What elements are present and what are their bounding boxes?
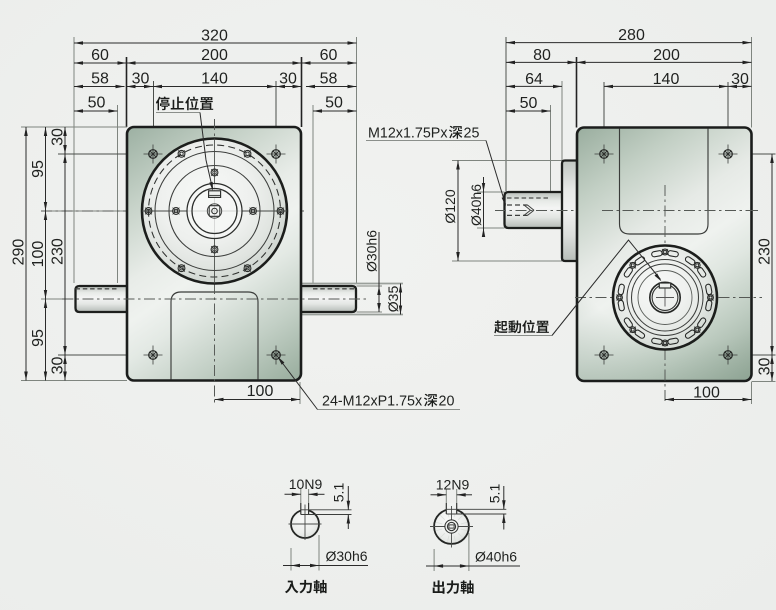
svg-text:200: 200 — [201, 47, 228, 64]
svg-text:30: 30 — [757, 358, 774, 376]
svg-text:290: 290 — [11, 239, 28, 266]
svg-text:100: 100 — [30, 241, 47, 268]
svg-text:30: 30 — [50, 357, 67, 375]
svg-text:50: 50 — [88, 94, 106, 111]
svg-text:320: 320 — [201, 27, 228, 44]
svg-text:140: 140 — [653, 71, 680, 88]
svg-text:5.1: 5.1 — [331, 483, 347, 503]
svg-text:230: 230 — [757, 238, 774, 265]
svg-text:30: 30 — [731, 71, 749, 88]
svg-text:30: 30 — [132, 70, 150, 87]
svg-text:50: 50 — [325, 94, 343, 111]
svg-text:Ø40h6: Ø40h6 — [475, 549, 517, 565]
svg-text:5.1: 5.1 — [486, 484, 502, 504]
svg-text:10N9: 10N9 — [289, 476, 323, 492]
svg-text:Ø30h6: Ø30h6 — [364, 230, 380, 272]
svg-text:64: 64 — [525, 71, 543, 88]
svg-text:95: 95 — [30, 160, 47, 178]
svg-text:20: 20 — [439, 394, 455, 410]
svg-text:58: 58 — [91, 70, 109, 87]
svg-text:30: 30 — [279, 70, 297, 87]
svg-text:200: 200 — [653, 47, 680, 64]
svg-text:60: 60 — [91, 47, 109, 64]
svg-text:30: 30 — [50, 128, 67, 146]
svg-text:80: 80 — [533, 47, 551, 64]
svg-text:Ø40h6: Ø40h6 — [468, 184, 484, 226]
svg-text:280: 280 — [618, 27, 645, 44]
svg-text:Ø35: Ø35 — [385, 286, 401, 313]
svg-text:M12x1.75Px: M12x1.75Px — [368, 126, 447, 142]
svg-text:100: 100 — [247, 383, 274, 400]
svg-text:140: 140 — [201, 70, 228, 87]
svg-text:24-M12xP1.75x: 24-M12xP1.75x — [322, 394, 422, 410]
svg-text:100: 100 — [693, 385, 720, 402]
svg-text:Ø30h6: Ø30h6 — [326, 548, 368, 564]
svg-text:12N9: 12N9 — [436, 477, 470, 493]
svg-text:58: 58 — [320, 70, 338, 87]
svg-text:Ø120: Ø120 — [442, 189, 458, 223]
svg-text:230: 230 — [50, 238, 67, 265]
svg-text:60: 60 — [320, 47, 338, 64]
svg-text:50: 50 — [520, 95, 538, 112]
svg-text:95: 95 — [30, 329, 47, 347]
svg-text:25: 25 — [464, 126, 480, 142]
